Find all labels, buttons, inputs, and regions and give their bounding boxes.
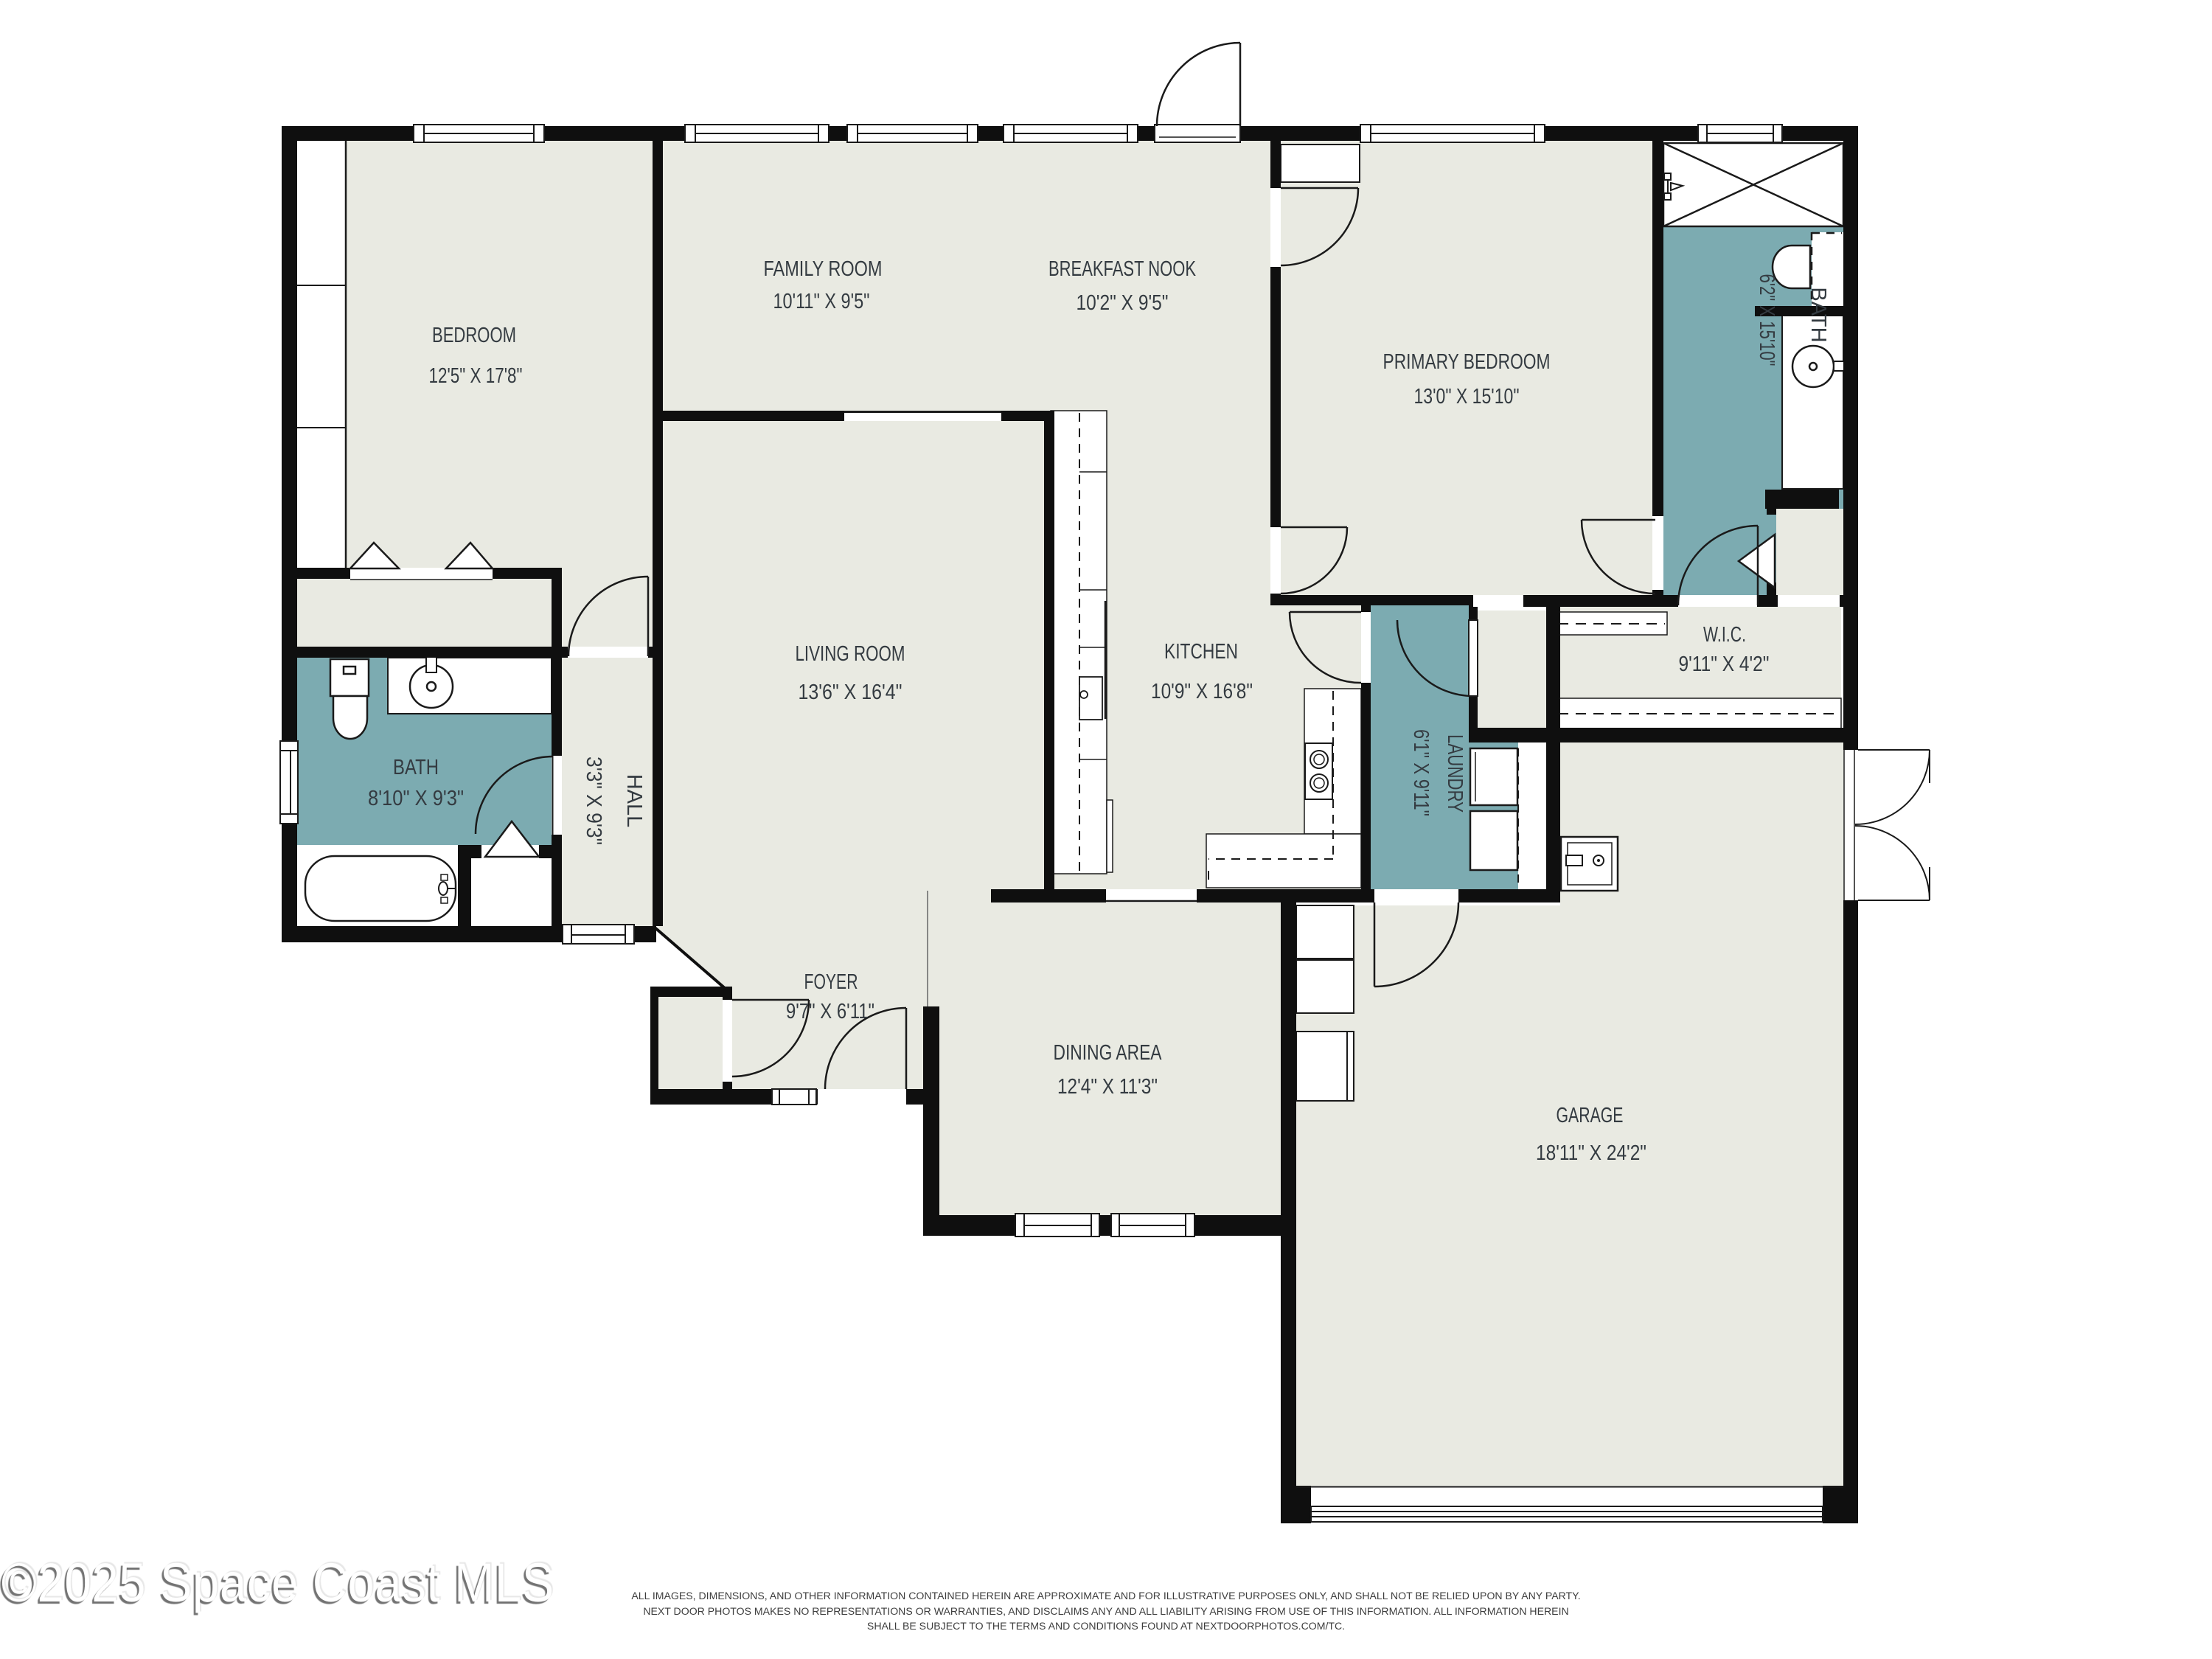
svg-text:LAUNDRY: LAUNDRY [1443, 734, 1467, 813]
svg-text:KITCHEN: KITCHEN [1164, 640, 1238, 664]
svg-text:9'11" X 4'2": 9'11" X 4'2" [1679, 653, 1770, 676]
svg-text:GARAGE: GARAGE [1557, 1104, 1624, 1127]
svg-text:DINING AREA: DINING AREA [1054, 1041, 1163, 1065]
svg-text:BATH: BATH [1806, 287, 1830, 342]
svg-text:18'11" X 24'2": 18'11" X 24'2" [1536, 1141, 1646, 1165]
svg-text:BREAKFAST NOOK: BREAKFAST NOOK [1048, 257, 1196, 281]
svg-text:FOYER: FOYER [804, 970, 858, 994]
svg-text:3'3" X 9'3": 3'3" X 9'3" [582, 757, 605, 845]
svg-text:6'2" X 15'10": 6'2" X 15'10" [1755, 274, 1778, 366]
svg-text:13'6" X 16'4": 13'6" X 16'4" [799, 681, 902, 704]
svg-text:HALL: HALL [622, 774, 646, 828]
svg-text:12'5" X 17'8": 12'5" X 17'8" [429, 364, 523, 388]
svg-text:10'11" X 9'5": 10'11" X 9'5" [773, 290, 870, 313]
svg-text:13'0" X 15'10": 13'0" X 15'10" [1414, 385, 1520, 408]
svg-text:8'10" X 9'3": 8'10" X 9'3" [368, 787, 464, 810]
svg-text:10'9" X 16'8": 10'9" X 16'8" [1151, 680, 1253, 703]
svg-text:PRIMARY BEDROOM: PRIMARY BEDROOM [1383, 350, 1551, 374]
svg-text:W.I.C.: W.I.C. [1703, 623, 1746, 647]
svg-text:9'7" X 6'11": 9'7" X 6'11" [786, 1000, 874, 1023]
svg-text:6'1" X 9'11": 6'1" X 9'11" [1409, 729, 1433, 816]
svg-text:LIVING ROOM: LIVING ROOM [796, 642, 905, 666]
svg-text:10'2" X 9'5": 10'2" X 9'5" [1077, 291, 1169, 315]
svg-text:BATH: BATH [393, 756, 439, 779]
svg-text:FAMILY ROOM: FAMILY ROOM [764, 257, 883, 281]
svg-text:BEDROOM: BEDROOM [432, 324, 516, 347]
svg-text:12'4" X 11'3": 12'4" X 11'3" [1057, 1075, 1158, 1099]
